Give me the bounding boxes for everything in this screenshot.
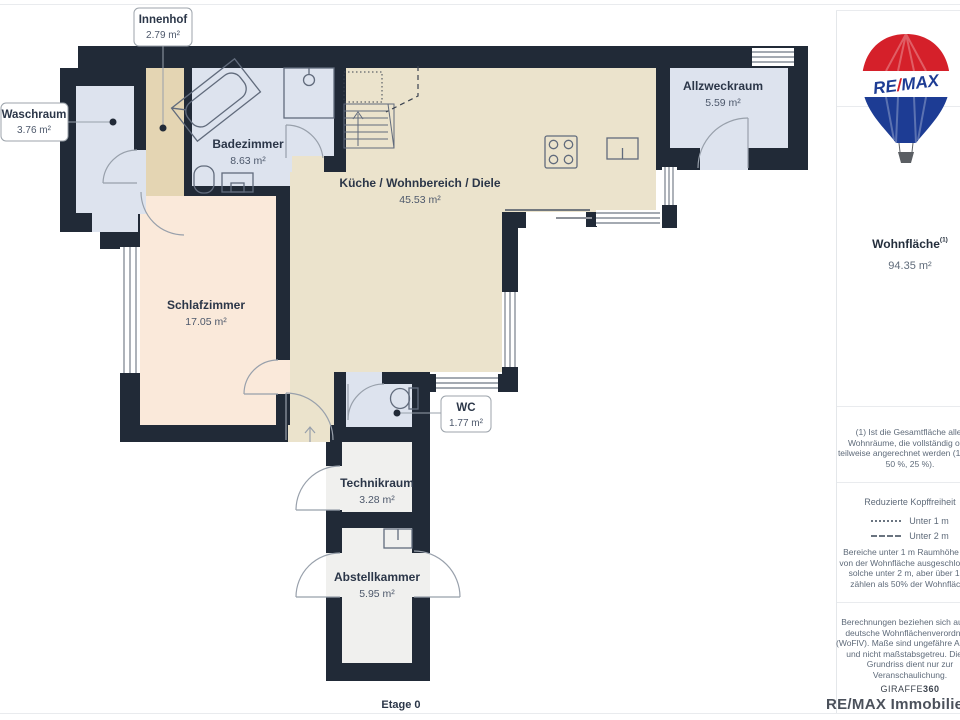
dashed-line-icon <box>871 535 901 537</box>
sidebar-divider-2 <box>837 406 960 407</box>
technikraum-name: Technikraum <box>340 476 414 490</box>
abstellkammer-area: 5.95 m² <box>359 588 395 600</box>
badezimmer-area: 8.63 m² <box>230 155 266 167</box>
window-top-right <box>752 48 794 66</box>
sidebar-left-border <box>836 10 837 713</box>
agency-watermark: RE/MAX Immobilien Del <box>826 696 960 713</box>
wc-name: WC <box>456 402 475 414</box>
sidebar-divider-3 <box>837 482 960 483</box>
kopffreiheit-title: Reduzierte Kopffreiheit <box>836 497 960 507</box>
room-innenhof <box>146 68 184 196</box>
floor-label: Etage 0 <box>381 699 420 711</box>
dotted-line-icon <box>871 520 901 522</box>
allzweckraum-area: 5.59 m² <box>705 97 741 109</box>
waschraum-area: 3.76 m² <box>17 125 52 136</box>
floor-plan: Badezimmer 8.63 m² Küche / Wohnbereich /… <box>0 0 836 720</box>
logo-re: RE <box>872 76 898 98</box>
wc-area: 1.77 m² <box>449 418 484 429</box>
sidebar-divider-4 <box>837 602 960 603</box>
badezimmer-name: Badezimmer <box>212 137 284 151</box>
kopffreiheit-block: Reduzierte Kopffreiheit Unter 1 m Unter … <box>836 497 960 589</box>
kueche-name: Küche / Wohnbereich / Diele <box>339 176 500 190</box>
wohnflaeche-block: Wohnfläche(1) 94.35 m² <box>836 235 960 272</box>
innenhof-name: Innenhof <box>139 14 188 26</box>
wohnflaeche-value: 94.35 m² <box>836 260 960 272</box>
allzweckraum-name: Allzweckraum <box>683 79 763 93</box>
kopffreiheit-body: Bereiche unter 1 m Raumhöhe sind von der… <box>836 547 960 589</box>
window-schlafzimmer <box>120 247 140 373</box>
window-kueche-bottom <box>436 374 498 392</box>
legend-under-2m: Unter 2 m <box>836 528 960 543</box>
schlafzimmer-area: 17.05 m² <box>185 316 227 328</box>
legend-under-1m: Unter 1 m <box>836 513 960 528</box>
window-terrace-sliding <box>505 210 660 226</box>
window-kueche-right <box>502 292 518 367</box>
wohnflaeche-footnote-marker: (1) <box>940 237 948 244</box>
technikraum-area: 3.28 m² <box>359 494 395 506</box>
sidebar-top-border <box>836 10 960 11</box>
remax-balloon-logo: RE/MAX <box>846 20 960 170</box>
disclaimer-block: Berechnungen beziehen sich auf die deuts… <box>836 617 960 680</box>
schlafzimmer-name: Schlafzimmer <box>167 298 245 312</box>
waschraum-name: Waschraum <box>2 109 67 121</box>
window-kueche-east <box>662 167 677 205</box>
abstellkammer-name: Abstellkammer <box>334 570 420 584</box>
wohnflaeche-label: Wohnfläche <box>872 237 940 251</box>
giraffe360-brand: GIRAFFE360 <box>836 684 960 694</box>
balloon-basket <box>898 152 914 163</box>
kueche-area: 45.53 m² <box>399 194 441 206</box>
innenhof-area: 2.79 m² <box>146 30 181 41</box>
room-waschraum <box>76 86 134 213</box>
room-wc <box>346 384 412 427</box>
footnote-block: (1) Ist die Gesamtfläche aller Wohnräume… <box>836 427 960 469</box>
